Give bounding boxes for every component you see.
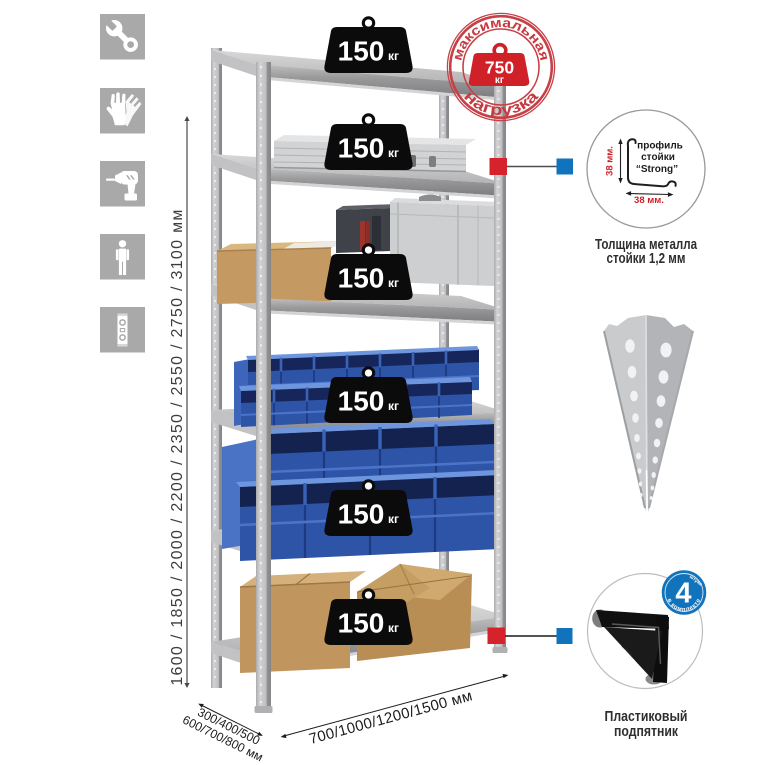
svg-text:1600 / 1850 / 2000 / 2200 / 23: 1600 / 1850 / 2000 / 2200 / 2350 / 2550 … [169,208,186,685]
svg-text:подпятник: подпятник [614,724,679,740]
svg-text:“Strong”: “Strong” [636,164,678,175]
svg-text:38 мм.: 38 мм. [634,195,664,206]
svg-text:700/1000/1200/1500 мм: 700/1000/1200/1500 мм [307,687,474,748]
svg-text:профиль: профиль [637,140,683,152]
svg-text:38 мм.: 38 мм. [605,146,616,176]
svg-text:стойки: стойки [641,152,675,163]
svg-text:стойки 1,2 мм: стойки 1,2 мм [607,251,686,267]
svg-text:Пластиковый: Пластиковый [605,709,688,725]
svg-text:4: 4 [675,578,691,610]
svg-text:кг: кг [495,75,504,86]
